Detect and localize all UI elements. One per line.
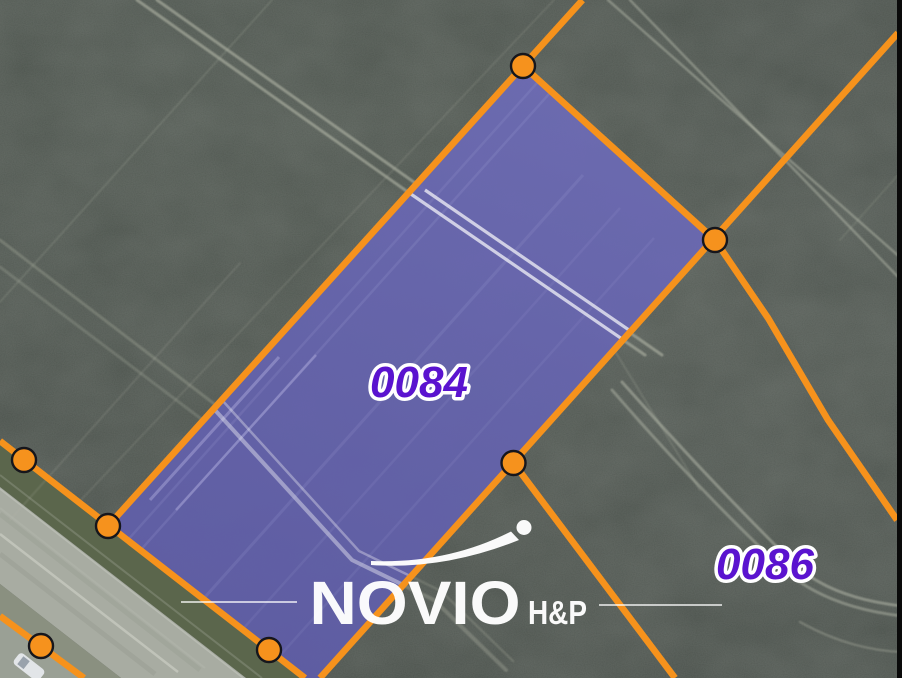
svg-text:H&P: H&P xyxy=(528,594,587,631)
svg-text:NOVIO: NOVIO xyxy=(310,569,521,638)
svg-text:0086: 0086 xyxy=(716,540,814,589)
svg-text:0084: 0084 xyxy=(370,358,468,407)
